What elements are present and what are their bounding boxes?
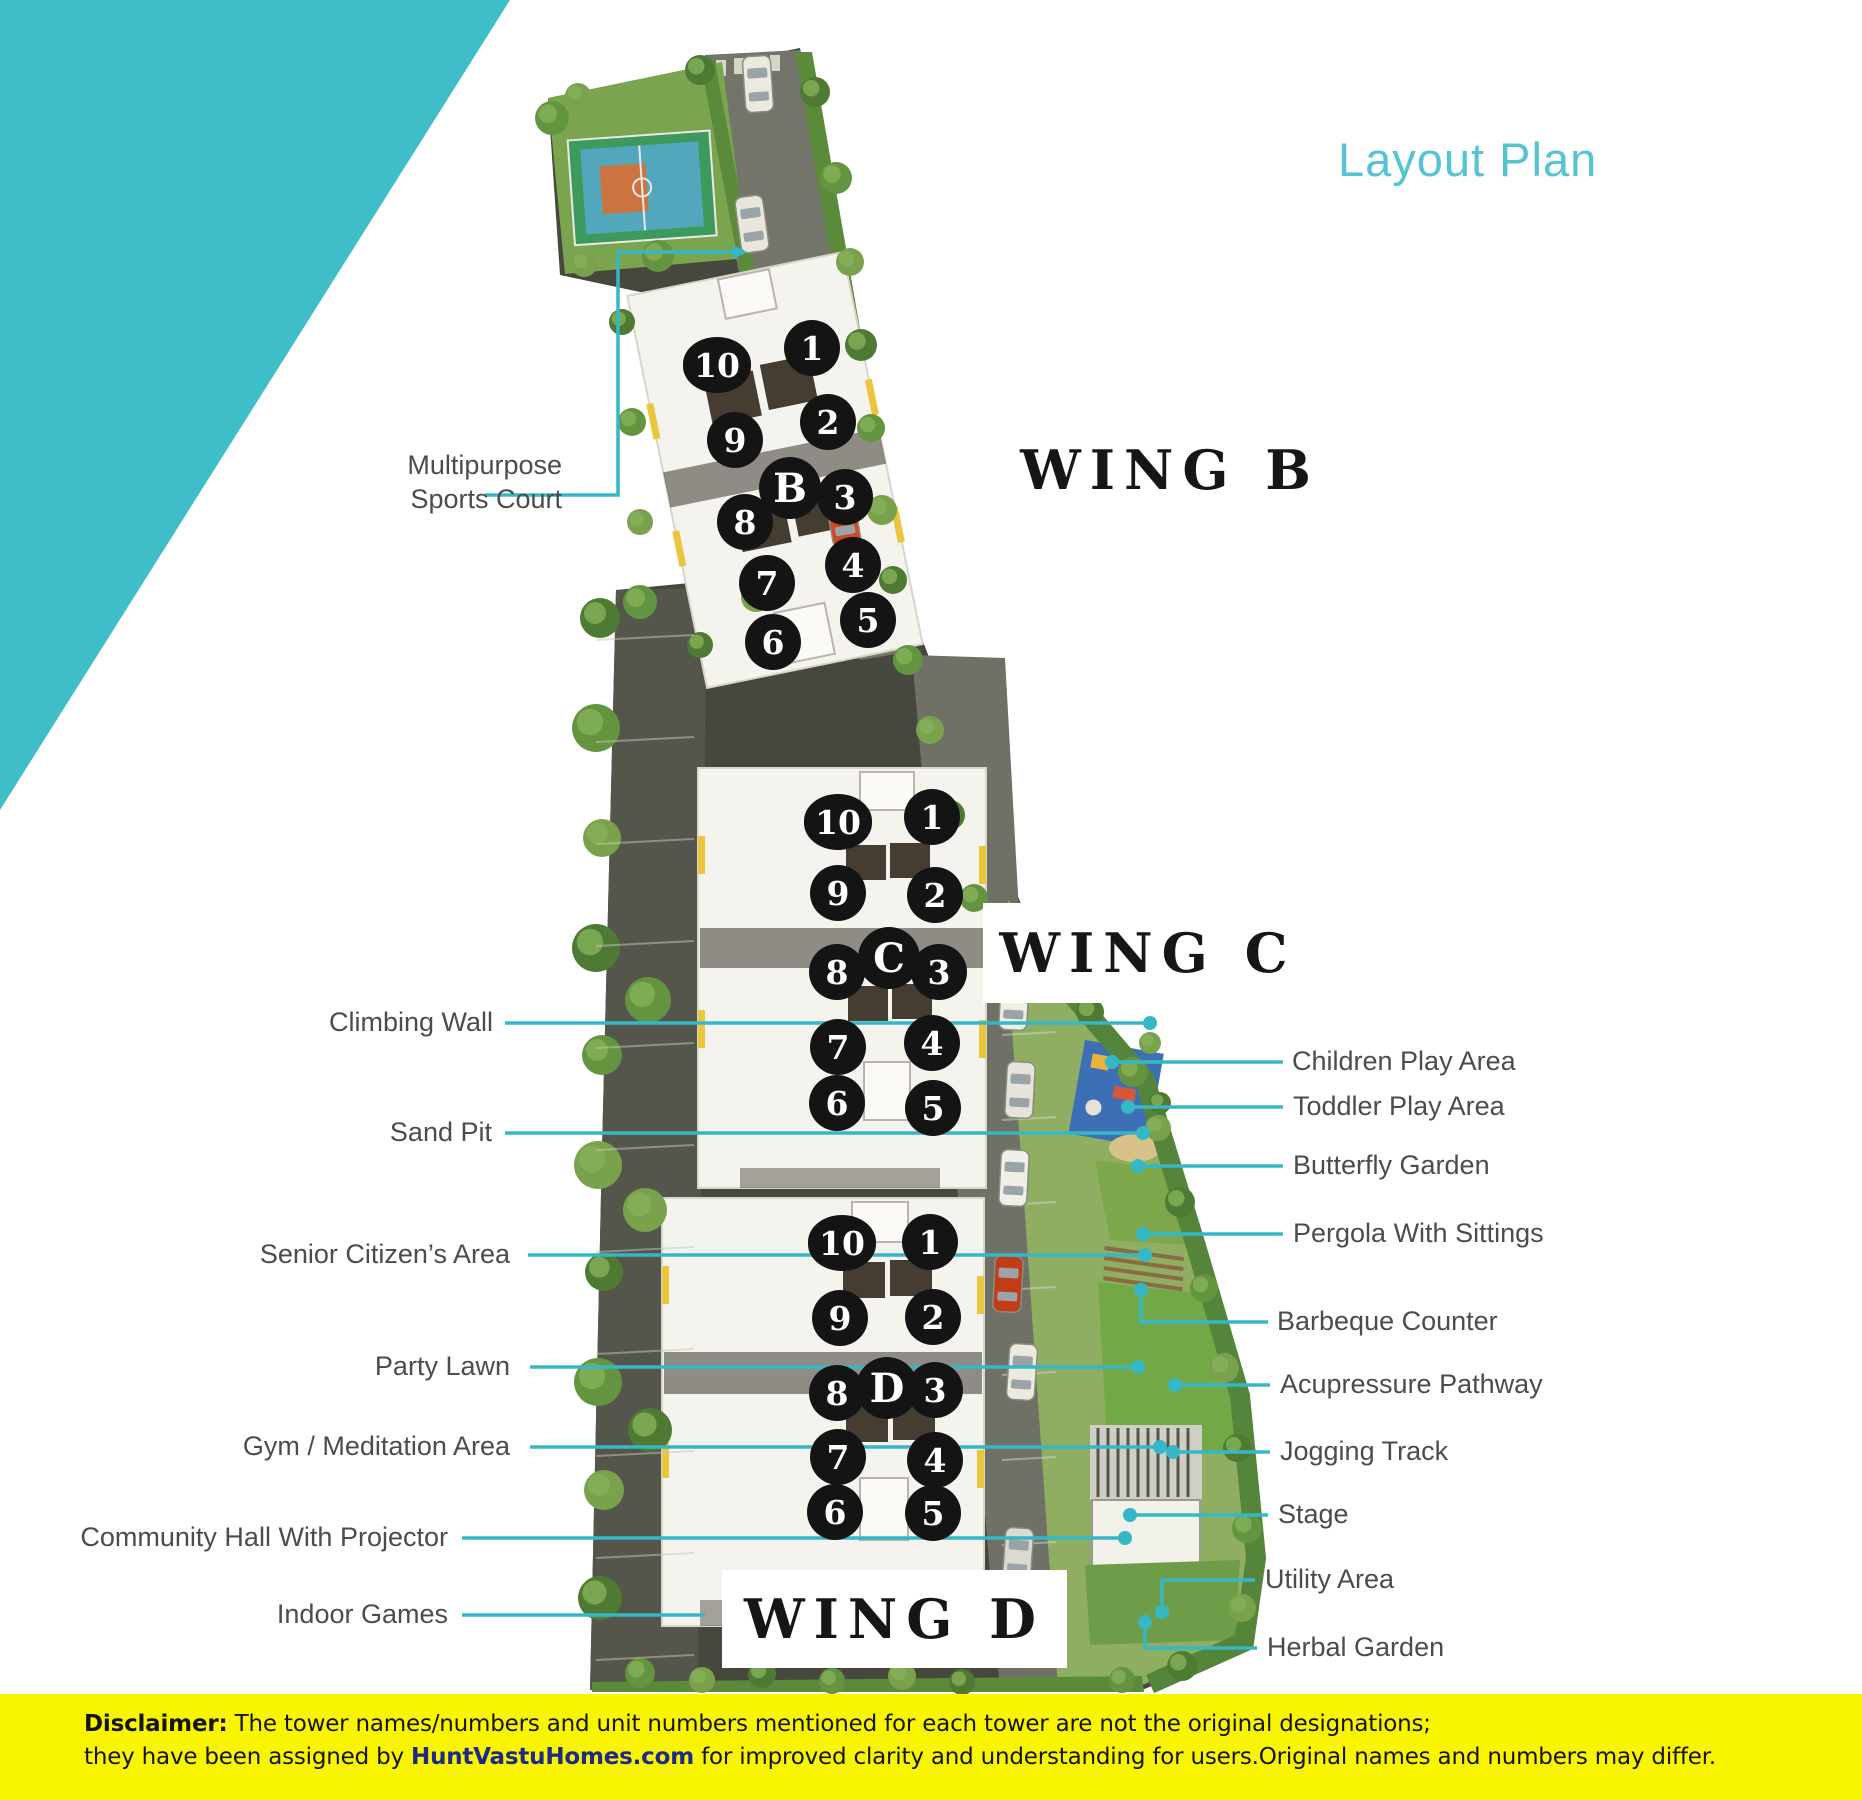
label-senior-citizens-area: Senior Citizen’s Area xyxy=(260,1237,510,1271)
wing-c-unit-4: 4 xyxy=(904,1015,960,1071)
label-climbing-wall: Climbing Wall xyxy=(329,1005,493,1039)
wing-d-unit-4: 4 xyxy=(907,1432,963,1488)
disclaimer-text: Disclaimer: The tower names/numbers and … xyxy=(84,1708,1862,1774)
wing-c-unit-9: 9 xyxy=(810,865,866,921)
label-community-hall-with-projector: Community Hall With Projector xyxy=(80,1520,448,1554)
wing-c-unit-10: 10 xyxy=(804,794,872,850)
wing-b-unit-9: 9 xyxy=(707,412,763,468)
wing-d-unit-9: 9 xyxy=(812,1290,868,1346)
huntvastuhomes-link: HuntVastuHomes.com xyxy=(411,1744,694,1770)
label-children-play-area: Children Play Area xyxy=(1292,1044,1516,1078)
wing-d-title-text: WING D xyxy=(744,1587,1045,1651)
label-gym-meditation-area: Gym / Meditation Area xyxy=(243,1429,510,1463)
wing-b-unit-4: 4 xyxy=(825,537,881,593)
wing-d-unit-1: 1 xyxy=(902,1214,958,1270)
wing-c-unit-5: 5 xyxy=(905,1080,961,1136)
wing-b-unit-5: 5 xyxy=(840,592,896,648)
wing-d-unit-7: 7 xyxy=(810,1429,866,1485)
wing-b-title-text: WING B xyxy=(1020,438,1320,502)
wing-c-unit-6: 6 xyxy=(809,1075,865,1131)
wing-d-unit-5: 5 xyxy=(905,1485,961,1541)
wing-b-unit-7: 7 xyxy=(739,555,795,611)
label-acupressure-pathway: Acupressure Pathway xyxy=(1280,1367,1543,1401)
wing-c-title: WING C xyxy=(983,903,1313,1003)
wing-c-unit-8: 8 xyxy=(809,944,865,1000)
label-jogging-track: Jogging Track xyxy=(1280,1434,1448,1468)
layout-plan-page: Layout Plan MultipurposeSports CourtClim… xyxy=(0,0,1862,1800)
label-party-lawn: Party Lawn xyxy=(375,1349,510,1383)
wing-d-title: WING D xyxy=(722,1570,1067,1668)
wing-d-unit-6: 6 xyxy=(807,1484,863,1540)
wing-c-unit-1: 1 xyxy=(904,789,960,845)
label-utility-area: Utility Area xyxy=(1265,1562,1394,1596)
wing-b-unit-6: 6 xyxy=(745,614,801,670)
wing-b-unit-10: 10 xyxy=(683,337,751,393)
wing-b-unit-3: 3 xyxy=(817,469,873,525)
wing-b-unit-2: 2 xyxy=(800,394,856,450)
wing-b-title: WING B xyxy=(1005,422,1335,517)
label-stage: Stage xyxy=(1278,1497,1349,1531)
wing-b-letter-circle: B xyxy=(759,457,821,519)
wing-d-unit-10: 10 xyxy=(808,1215,876,1271)
wing-b-unit-1: 1 xyxy=(784,320,840,376)
label-indoor-games: Indoor Games xyxy=(277,1597,448,1631)
label-butterfly-garden: Butterfly Garden xyxy=(1293,1148,1490,1182)
wing-c-title-text: WING C xyxy=(999,921,1296,985)
wing-d-letter-circle: D xyxy=(856,1357,918,1419)
wing-c-unit-2: 2 xyxy=(907,867,963,923)
label-herbal-garden: Herbal Garden xyxy=(1267,1630,1444,1664)
disclaimer-label: Disclaimer: xyxy=(84,1711,228,1737)
label-multipurpose-sports-court: MultipurposeSports Court xyxy=(407,448,562,516)
wing-c-letter-circle: C xyxy=(858,927,920,989)
wing-d-unit-2: 2 xyxy=(905,1289,961,1345)
label-pergola-with-sittings: Pergola With Sittings xyxy=(1293,1216,1544,1250)
label-toddler-play-area: Toddler Play Area xyxy=(1293,1089,1505,1123)
wing-c-unit-7: 7 xyxy=(810,1019,866,1075)
label-barbeque-counter: Barbeque Counter xyxy=(1277,1304,1498,1338)
label-sand-pit: Sand Pit xyxy=(390,1115,492,1149)
disclaimer-bar: Disclaimer: The tower names/numbers and … xyxy=(0,1694,1862,1800)
